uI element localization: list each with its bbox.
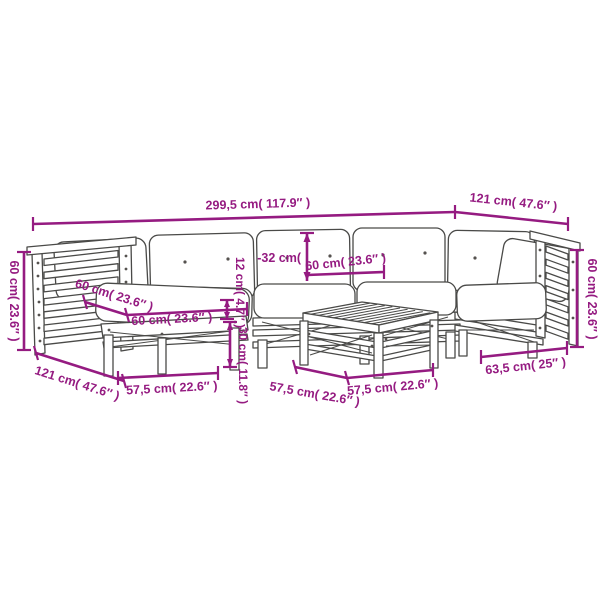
product-dimension-diagram: 299,5 cm( 117.9″ ) 121 cm( 47.6″ ) 60 cm… bbox=[0, 0, 600, 600]
dim-table-width: 57,5 cm( 22.6″ ) bbox=[346, 363, 438, 398]
dim-label-table-width: 57,5 cm( 22.6″ ) bbox=[346, 376, 438, 398]
dim-total-width: 299,5 cm( 117.9″ ) bbox=[33, 195, 455, 231]
dim-left-height: 60 cm( 23.6″ ) bbox=[7, 252, 31, 350]
dim-label-ottoman-base-width: 57,5 cm( 22.6″ ) bbox=[126, 379, 218, 398]
dim-label-frame-height: 30 cm( 11.8″ ) bbox=[236, 327, 250, 404]
dim-ottoman-base-width: 57,5 cm( 22.6″ ) bbox=[118, 366, 218, 397]
dim-label-total-width: 299,5 cm( 117.9″ ) bbox=[205, 195, 310, 212]
dim-label-back-cushion: -32 cm( bbox=[257, 251, 302, 265]
ottoman-leg bbox=[104, 335, 113, 376]
table-leg bbox=[300, 321, 308, 365]
arm-back-post bbox=[32, 252, 45, 355]
dim-corner-module-width: 63,5 cm( 25″ ) bbox=[481, 341, 567, 377]
dim-label-cushion-thickness: 12 cm( 4.7″ ) bbox=[233, 257, 247, 328]
dim-top-depth: 121 cm( 47.6″ ) bbox=[455, 190, 568, 231]
dim-label-left-height: 60 cm( 23.6″ ) bbox=[7, 260, 21, 341]
dim-frame-height: 30 cm( 11.8″ ) bbox=[223, 322, 250, 404]
dim-label-top-depth: 121 cm( 47.6″ ) bbox=[469, 190, 558, 213]
dim-label-corner-module-width: 63,5 cm( 25″ ) bbox=[485, 355, 567, 377]
dim-label-right-height: 60 cm( 23.6″ ) bbox=[585, 258, 599, 339]
diagram-canvas: 299,5 cm( 117.9″ ) 121 cm( 47.6″ ) 60 cm… bbox=[0, 0, 600, 600]
